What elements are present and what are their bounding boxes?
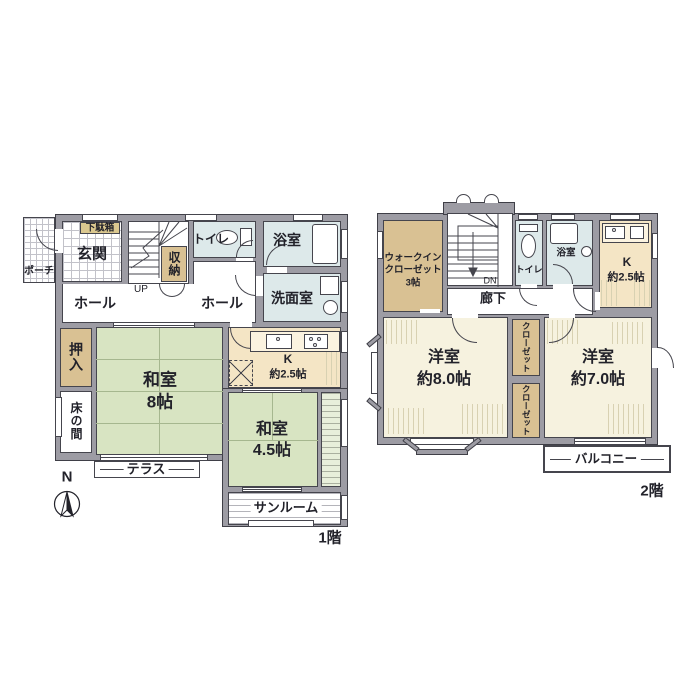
washitsu8-name-label: 和室 <box>143 372 177 389</box>
entrance-label: 玄関 <box>77 247 107 262</box>
porch-label: ポーチ <box>24 267 54 277</box>
tatami-line <box>96 423 223 424</box>
toilet-2f-label: トイレ <box>515 266 542 275</box>
kitchen-2f-size-label: 約2.5帖 <box>607 273 644 284</box>
tatami-line <box>96 359 223 360</box>
bathtub-2f-icon <box>550 223 578 244</box>
door-gap <box>420 309 440 313</box>
window <box>341 331 348 353</box>
window <box>341 229 348 259</box>
kitchen-1f-name-label: K <box>284 353 293 365</box>
veranda-strip <box>321 392 341 487</box>
arched-window <box>484 194 499 203</box>
kitchen-2f-hatch <box>601 280 621 306</box>
up-label: UP <box>134 285 148 295</box>
oshiire-label: 押入 <box>69 342 83 372</box>
toilet-2f-bowl-icon <box>521 234 536 258</box>
washitsu8-size-label: 8帖 <box>147 394 173 411</box>
toilet-1f-label: トイレ <box>193 233 229 245</box>
bay-window-south-gap <box>410 438 474 445</box>
stairs-2f <box>447 213 513 286</box>
floorplan-canvas: ポーチ 下駄箱 玄関 収納 UP トイレ 浴室 ホール ホール 洗面室 押入 床… <box>0 0 700 700</box>
wic-label-line1: ウォークイン <box>384 253 441 263</box>
door-gap <box>553 284 573 289</box>
kitchen-sink-1f-icon <box>266 334 292 349</box>
stove-burner-dot <box>309 337 313 341</box>
window <box>341 281 348 313</box>
sink-faucet-dot <box>612 228 616 232</box>
window <box>610 214 640 220</box>
wic-label-line2: クローゼット <box>384 265 441 275</box>
stove-burner-dot <box>317 337 321 341</box>
west-room-8-hatch <box>388 408 428 434</box>
sink-faucet-dot <box>276 337 280 341</box>
door-gap <box>230 322 252 327</box>
kitchen-2f-hatch <box>634 280 650 306</box>
door-swing-arc <box>658 347 674 368</box>
window <box>55 397 62 437</box>
counter-unit-icon <box>630 226 644 239</box>
dn-label: DN <box>484 277 497 286</box>
sliding-door <box>242 487 302 492</box>
kitchen-2f-name-label: K <box>623 256 632 268</box>
tatami-line <box>228 440 318 441</box>
hall-right-label: ホール <box>201 296 243 310</box>
stairs-2f-treads <box>448 214 514 287</box>
arched-window <box>456 194 471 203</box>
window <box>341 399 348 447</box>
closet-lower-label: クローゼット <box>522 385 531 436</box>
west-room-7-hatch <box>612 322 646 344</box>
bay-window-bar <box>416 449 468 455</box>
floor1-label: 1階 <box>318 531 341 546</box>
toilet-2f-tank-icon <box>519 224 538 232</box>
window <box>551 214 575 220</box>
washbasin-2f-icon <box>581 246 592 257</box>
terrace-label: テラス <box>124 463 169 476</box>
door-gap <box>267 267 287 273</box>
floor2-label: 2階 <box>640 484 663 499</box>
tokonoma-label: 床の間 <box>70 402 82 441</box>
window <box>377 231 383 259</box>
west-room-8-hatch <box>462 404 504 434</box>
door-gap <box>256 276 263 296</box>
sliding-glass-door <box>574 438 646 445</box>
west-room-7-name-label: 洋室 <box>582 350 614 366</box>
storage-1f-label: 収納 <box>168 251 180 277</box>
compass-icon <box>53 490 81 518</box>
bay-window-west <box>371 352 378 394</box>
washing-machine-icon <box>320 276 339 295</box>
window <box>518 214 538 220</box>
closet-upper-label: クローゼット <box>522 322 531 373</box>
sliding-door <box>113 322 195 328</box>
sliding-glass-door <box>100 454 208 461</box>
door-gap <box>236 258 253 261</box>
west-room-7-hatch <box>608 404 648 434</box>
sliding-door <box>242 388 302 393</box>
hall-left-label: ホール <box>74 296 116 310</box>
bathtub-1f-icon <box>312 224 338 264</box>
balcony-label: バルコニー <box>571 453 641 466</box>
corridor-label: 廊下 <box>480 292 506 305</box>
west-room-8-name-label: 洋室 <box>428 350 460 366</box>
window <box>185 214 217 221</box>
window <box>248 520 314 527</box>
kitchen-1f-size-label: 約2.5帖 <box>269 370 306 381</box>
shoe-cabinet-label: 下駄箱 <box>86 223 115 233</box>
west-room-7-size-label: 約7.0帖 <box>571 372 625 388</box>
stove-1f-icon <box>304 334 328 349</box>
bath-1f-label: 浴室 <box>273 233 301 247</box>
washroom-label: 洗面室 <box>271 291 313 305</box>
washbasin-1f-icon <box>323 300 338 315</box>
wic-label-line3: 3帖 <box>406 278 421 288</box>
stove-burner-dot <box>313 343 317 347</box>
refrigerator-space-icon <box>229 360 253 386</box>
window <box>652 233 658 259</box>
window <box>82 214 118 221</box>
washitsu45-name-label: 和室 <box>256 422 288 438</box>
compass-north-label: N <box>62 470 73 485</box>
sunroom-label: サンルーム <box>251 501 322 515</box>
west-room-8-hatch <box>386 320 420 344</box>
west-room-8-size-label: 約8.0帖 <box>417 372 471 388</box>
bath-2f-label: 浴室 <box>556 248 575 258</box>
washitsu45-size-label: 4.5帖 <box>253 443 291 459</box>
window <box>341 495 348 520</box>
window <box>293 214 323 221</box>
